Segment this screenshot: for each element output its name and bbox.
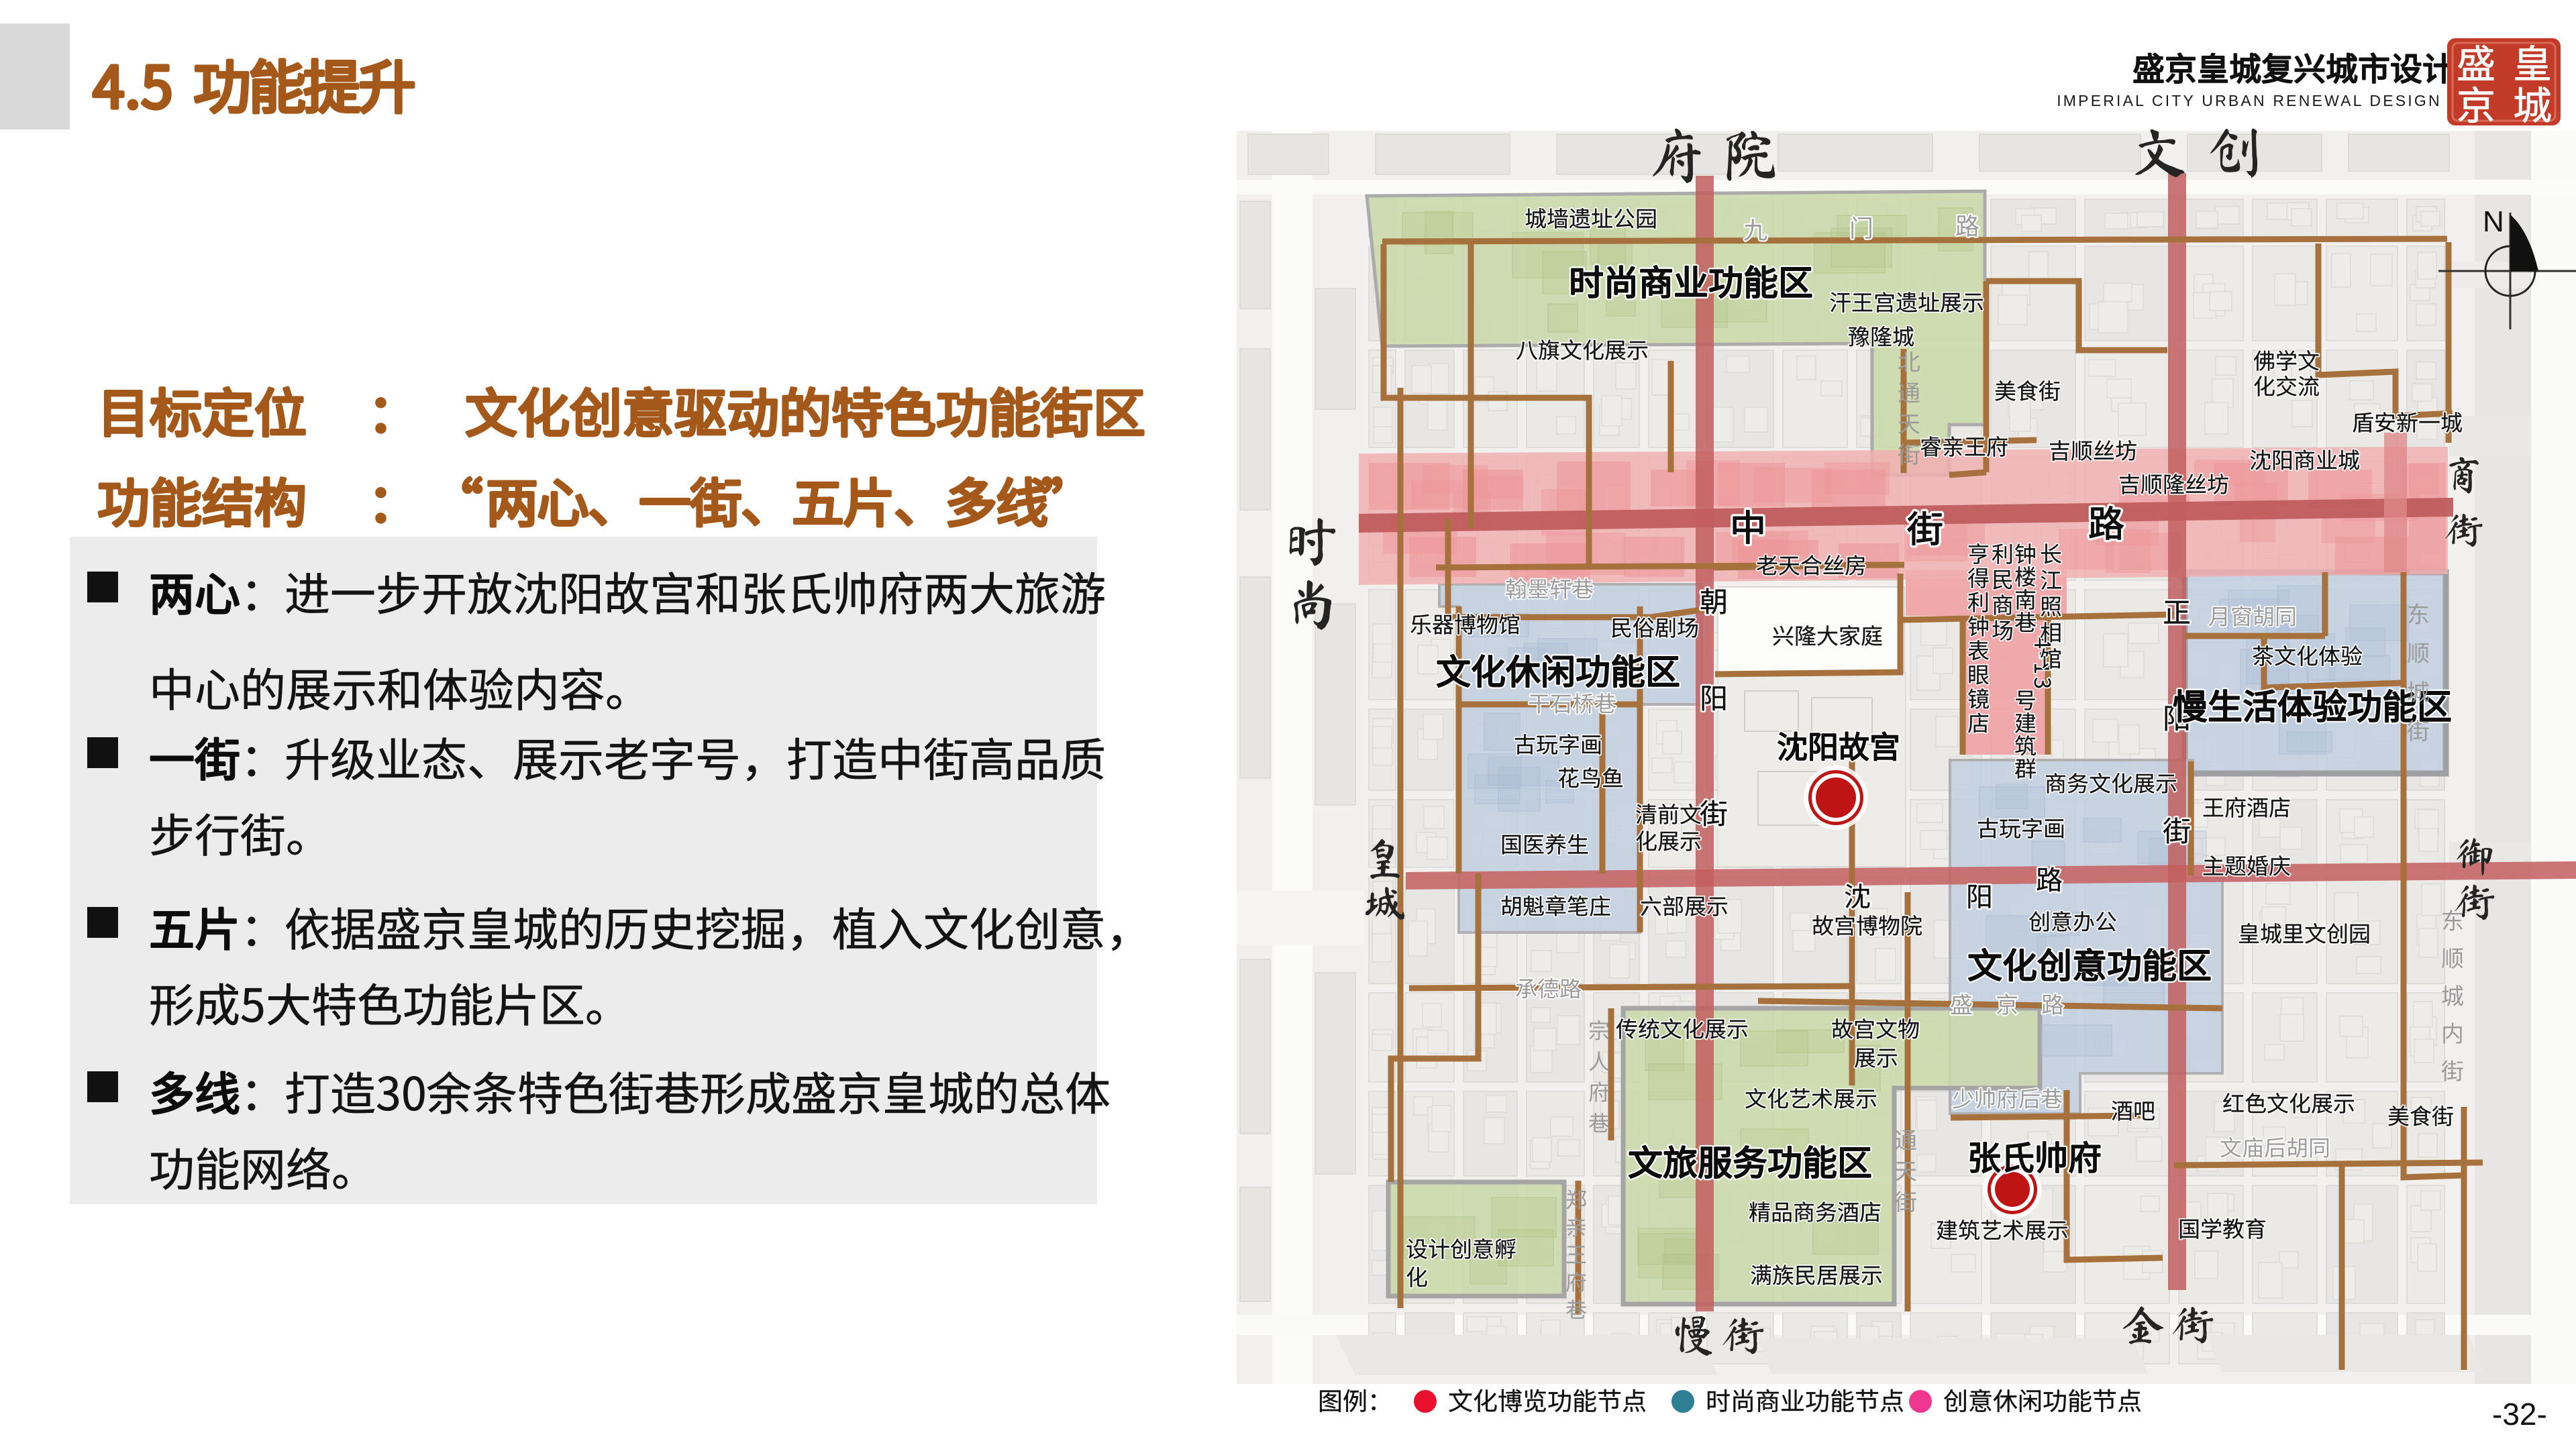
svg-text:-32-: -32- <box>2492 1397 2547 1432</box>
svg-text:IMPERIAL CITY URBAN RENEWAL DE: IMPERIAL CITY URBAN RENEWAL DESIGN <box>2057 92 2442 109</box>
svg-text:N: N <box>2483 205 2504 238</box>
